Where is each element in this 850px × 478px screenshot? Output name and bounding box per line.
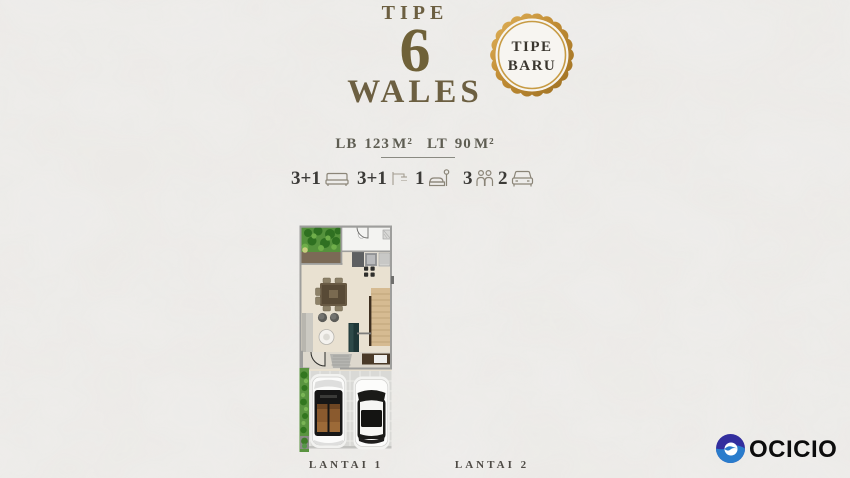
svg-text:TIPE: TIPE (511, 39, 552, 55)
svg-text:BARU: BARU (508, 58, 557, 74)
